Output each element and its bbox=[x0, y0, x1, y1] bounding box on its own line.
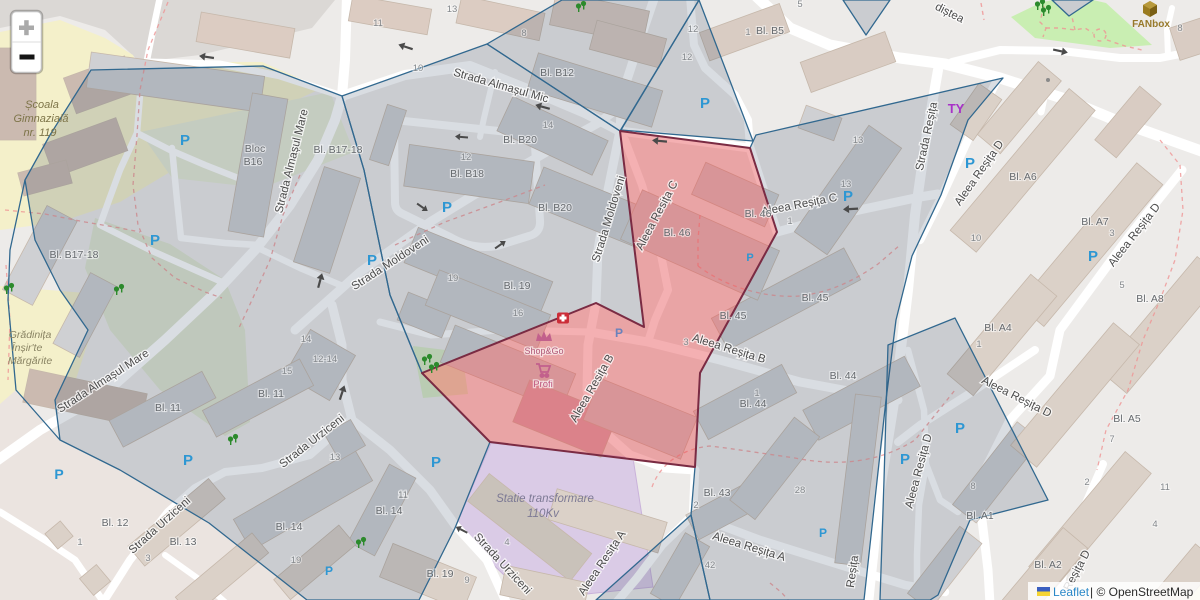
svg-text:1: 1 bbox=[77, 537, 82, 548]
svg-text:Bl. B20: Bl. B20 bbox=[538, 202, 572, 214]
svg-text:Bloc: Bloc bbox=[245, 143, 265, 155]
svg-text:Bl. A1: Bl. A1 bbox=[966, 510, 994, 522]
svg-text:Bl. 19: Bl. 19 bbox=[427, 568, 454, 580]
svg-text:Statie transformare: Statie transformare bbox=[496, 493, 594, 505]
svg-text:Bl. A8: Bl. A8 bbox=[1136, 293, 1164, 305]
svg-text:4: 4 bbox=[504, 537, 509, 548]
svg-text:8: 8 bbox=[970, 481, 975, 492]
svg-text:nr. 119: nr. 119 bbox=[23, 127, 56, 139]
svg-text:1: 1 bbox=[976, 339, 981, 350]
svg-text:5: 5 bbox=[1119, 280, 1124, 291]
svg-text:P: P bbox=[325, 564, 333, 578]
svg-text:Înșir'te: Înșir'te bbox=[12, 341, 43, 354]
svg-text:Bl. B20: Bl. B20 bbox=[503, 134, 537, 146]
svg-text:Școala: Școala bbox=[25, 99, 59, 111]
svg-text:1: 1 bbox=[745, 27, 750, 38]
svg-text:8: 8 bbox=[1177, 23, 1182, 34]
svg-text:Mărgărite: Mărgărite bbox=[8, 355, 53, 367]
svg-text:Leaflet: Leaflet bbox=[1053, 585, 1090, 599]
svg-text:Bl. 44: Bl. 44 bbox=[740, 398, 767, 410]
svg-text:5: 5 bbox=[797, 0, 802, 10]
svg-text:P: P bbox=[615, 326, 623, 340]
svg-text:16: 16 bbox=[513, 308, 524, 319]
svg-text:| © OpenStreetMap: | © OpenStreetMap bbox=[1090, 585, 1194, 599]
svg-text:19: 19 bbox=[291, 555, 302, 566]
svg-text:FANbox: FANbox bbox=[1132, 19, 1170, 30]
svg-text:P: P bbox=[955, 420, 965, 437]
svg-text:2: 2 bbox=[693, 500, 698, 511]
svg-text:Bl. 43: Bl. 43 bbox=[704, 487, 731, 499]
svg-text:28: 28 bbox=[795, 485, 806, 496]
svg-text:3: 3 bbox=[1109, 228, 1114, 239]
svg-text:P: P bbox=[431, 454, 441, 471]
svg-text:Bl. 11: Bl. 11 bbox=[155, 402, 181, 414]
svg-text:Bl. A7: Bl. A7 bbox=[1081, 216, 1109, 228]
svg-text:Bl. 14: Bl. 14 bbox=[276, 521, 303, 533]
svg-text:Bl. B12: Bl. B12 bbox=[540, 67, 574, 79]
svg-text:Bl. 12: Bl. 12 bbox=[102, 517, 129, 529]
svg-text:11: 11 bbox=[373, 18, 383, 29]
svg-text:14: 14 bbox=[301, 334, 312, 345]
svg-text:Bl. A4: Bl. A4 bbox=[984, 322, 1012, 334]
svg-text:P: P bbox=[150, 232, 160, 249]
svg-text:P: P bbox=[900, 451, 910, 468]
svg-text:Bl. 46: Bl. 46 bbox=[745, 208, 772, 220]
svg-text:1: 1 bbox=[787, 216, 792, 227]
svg-text:42: 42 bbox=[705, 560, 716, 571]
svg-text:B16: B16 bbox=[244, 156, 263, 168]
svg-text:13: 13 bbox=[447, 4, 458, 15]
svg-text:P: P bbox=[442, 199, 452, 216]
svg-text:9: 9 bbox=[464, 575, 469, 586]
svg-text:Bl. A2: Bl. A2 bbox=[1034, 559, 1062, 571]
svg-text:11: 11 bbox=[1160, 482, 1170, 493]
svg-text:Bl. A5: Bl. A5 bbox=[1113, 413, 1141, 425]
svg-text:3: 3 bbox=[683, 337, 688, 348]
svg-text:Bl. 44: Bl. 44 bbox=[830, 370, 857, 382]
svg-text:12: 12 bbox=[688, 24, 699, 35]
svg-text:12: 12 bbox=[461, 152, 472, 163]
svg-text:Bl. 45: Bl. 45 bbox=[720, 310, 747, 322]
svg-text:P: P bbox=[965, 155, 975, 172]
svg-text:14: 14 bbox=[543, 120, 554, 131]
svg-text:19: 19 bbox=[448, 273, 459, 284]
svg-text:13: 13 bbox=[330, 452, 341, 463]
svg-text:13: 13 bbox=[853, 135, 864, 146]
svg-text:Bl. B17-18: Bl. B17-18 bbox=[313, 144, 362, 156]
svg-text:Bl. 11: Bl. 11 bbox=[258, 388, 284, 400]
svg-text:12-14: 12-14 bbox=[313, 354, 337, 365]
svg-text:10: 10 bbox=[971, 233, 982, 244]
svg-text:15: 15 bbox=[282, 366, 293, 377]
svg-text:P: P bbox=[746, 252, 753, 264]
svg-text:8: 8 bbox=[521, 28, 526, 39]
svg-text:Bl. A6: Bl. A6 bbox=[1009, 171, 1037, 183]
svg-text:4: 4 bbox=[1152, 519, 1157, 530]
svg-text:Bl. 13: Bl. 13 bbox=[170, 536, 197, 548]
svg-text:Bl. 14: Bl. 14 bbox=[376, 505, 403, 517]
svg-text:7: 7 bbox=[1109, 434, 1114, 445]
svg-text:110Kv: 110Kv bbox=[527, 508, 560, 520]
svg-text:Bl. 19: Bl. 19 bbox=[504, 280, 531, 292]
svg-text:P: P bbox=[180, 132, 190, 149]
svg-text:P: P bbox=[183, 452, 193, 469]
svg-text:10: 10 bbox=[413, 63, 424, 74]
svg-text:P: P bbox=[367, 252, 377, 269]
svg-text:Profi: Profi bbox=[533, 379, 553, 390]
svg-text:3: 3 bbox=[145, 553, 150, 564]
svg-text:Bl. 45: Bl. 45 bbox=[802, 292, 829, 304]
svg-text:P: P bbox=[843, 188, 853, 205]
svg-text:TY: TY bbox=[948, 101, 965, 116]
svg-text:Bl. 46: Bl. 46 bbox=[664, 227, 691, 239]
svg-text:Shop&Go: Shop&Go bbox=[524, 346, 563, 356]
svg-text:P: P bbox=[1088, 248, 1098, 265]
svg-text:Bl. B17-18: Bl. B17-18 bbox=[49, 249, 98, 261]
svg-text:P: P bbox=[819, 526, 827, 540]
svg-text:2: 2 bbox=[1084, 477, 1089, 488]
svg-text:P: P bbox=[700, 95, 710, 112]
svg-text:11: 11 bbox=[398, 490, 408, 501]
svg-text:Bl. B5: Bl. B5 bbox=[756, 25, 784, 37]
svg-text:P: P bbox=[54, 466, 63, 482]
svg-text:Bl. B18: Bl. B18 bbox=[450, 168, 484, 180]
svg-text:1: 1 bbox=[754, 388, 759, 399]
svg-text:Gimnazială: Gimnazială bbox=[13, 113, 68, 125]
svg-text:12: 12 bbox=[682, 52, 693, 63]
svg-text:Grădinița: Grădinița bbox=[9, 329, 52, 341]
